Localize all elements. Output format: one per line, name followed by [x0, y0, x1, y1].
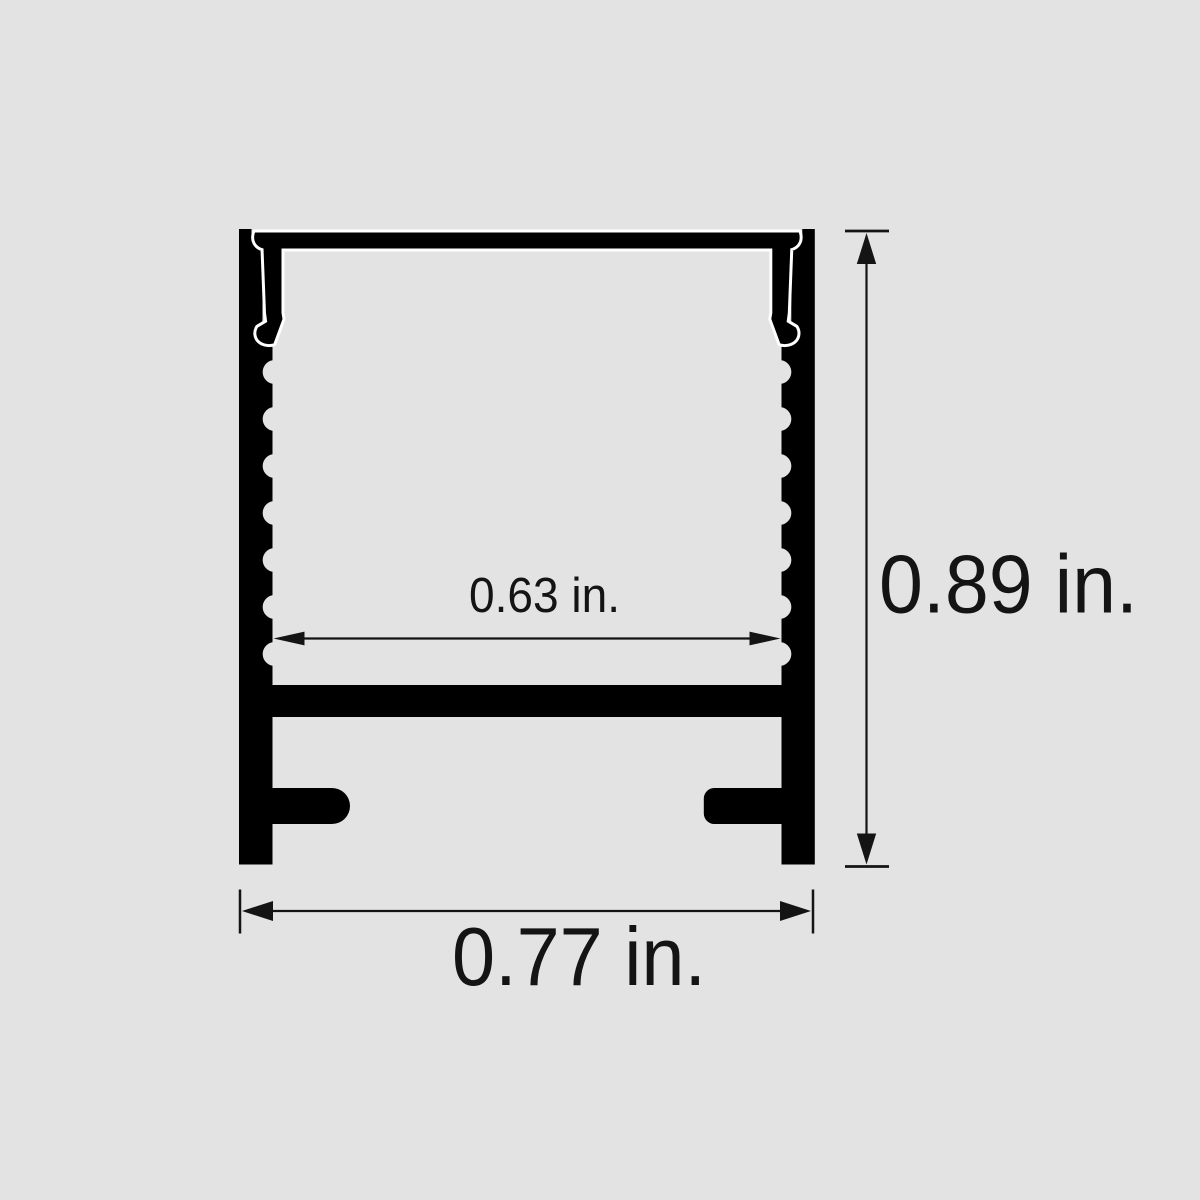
- svg-text:0.89 in.: 0.89 in.: [879, 538, 1138, 631]
- svg-text:0.63 in.: 0.63 in.: [469, 569, 620, 623]
- svg-text:0.77 in.: 0.77 in.: [452, 910, 706, 1003]
